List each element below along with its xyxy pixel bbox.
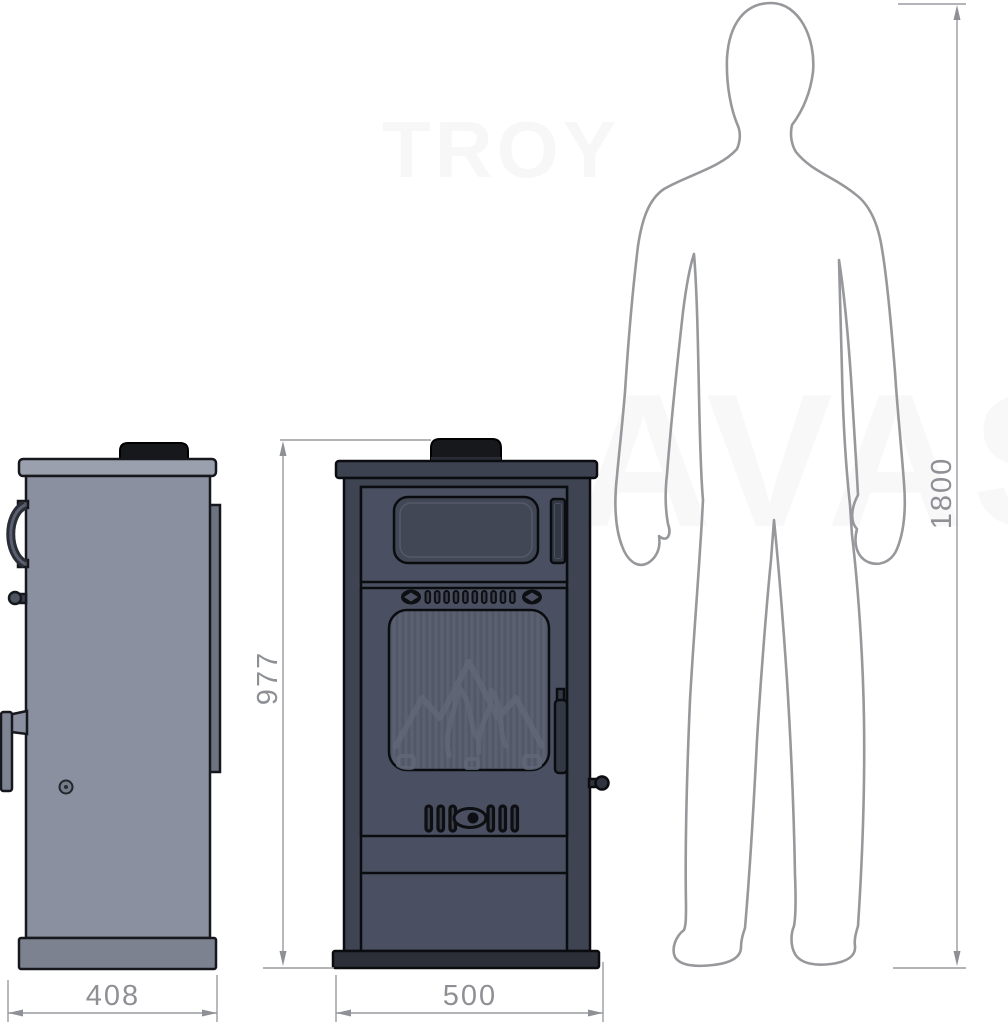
- oven-door: [361, 487, 567, 582]
- dimension-side-width: 408: [8, 975, 217, 1022]
- human-silhouette: [615, 3, 904, 966]
- base-plinth-front: [333, 951, 599, 968]
- door-latch-knob: [589, 777, 609, 790]
- arrowhead-left: [8, 1010, 23, 1017]
- fire-door-handle: [555, 689, 567, 773]
- side-bolt-center: [64, 785, 68, 789]
- top-plate-front: [336, 461, 597, 478]
- side-door-handle: [1, 711, 27, 791]
- oven-window: [394, 497, 538, 563]
- door-glass: [389, 610, 549, 770]
- stove-side-view: [1, 443, 220, 969]
- stove-front-view: [333, 439, 609, 968]
- body-panel-side: [26, 476, 210, 938]
- arrowhead-up: [954, 5, 961, 20]
- air-control: [426, 806, 518, 831]
- top-plate-side: [19, 459, 216, 476]
- air-slots-right: [488, 806, 518, 831]
- arrowhead-right: [202, 1010, 217, 1017]
- air-slots-left: [426, 806, 456, 831]
- base-plinth-side: [19, 938, 216, 969]
- arrowhead-left: [336, 1010, 351, 1017]
- dimension-drawing: 977 408 500 1: [0, 0, 1008, 1024]
- arrowhead-down: [954, 951, 961, 966]
- dimension-front-width: 500: [336, 962, 603, 1022]
- side-knob: [9, 592, 26, 604]
- arrowhead-down: [280, 951, 287, 966]
- arrowhead-up: [280, 441, 287, 456]
- dim-label-front-width: 500: [443, 980, 497, 1012]
- dim-label-stove-height: 977: [252, 651, 284, 705]
- dim-label-side-width: 408: [86, 980, 140, 1012]
- oven-door-handle: [551, 499, 565, 563]
- flue-collar-side: [120, 443, 188, 460]
- dim-label-person-height: 1800: [926, 457, 958, 530]
- arrowhead-right: [588, 1010, 603, 1017]
- diagram-canvas: TROY AVAS: [0, 0, 1008, 1024]
